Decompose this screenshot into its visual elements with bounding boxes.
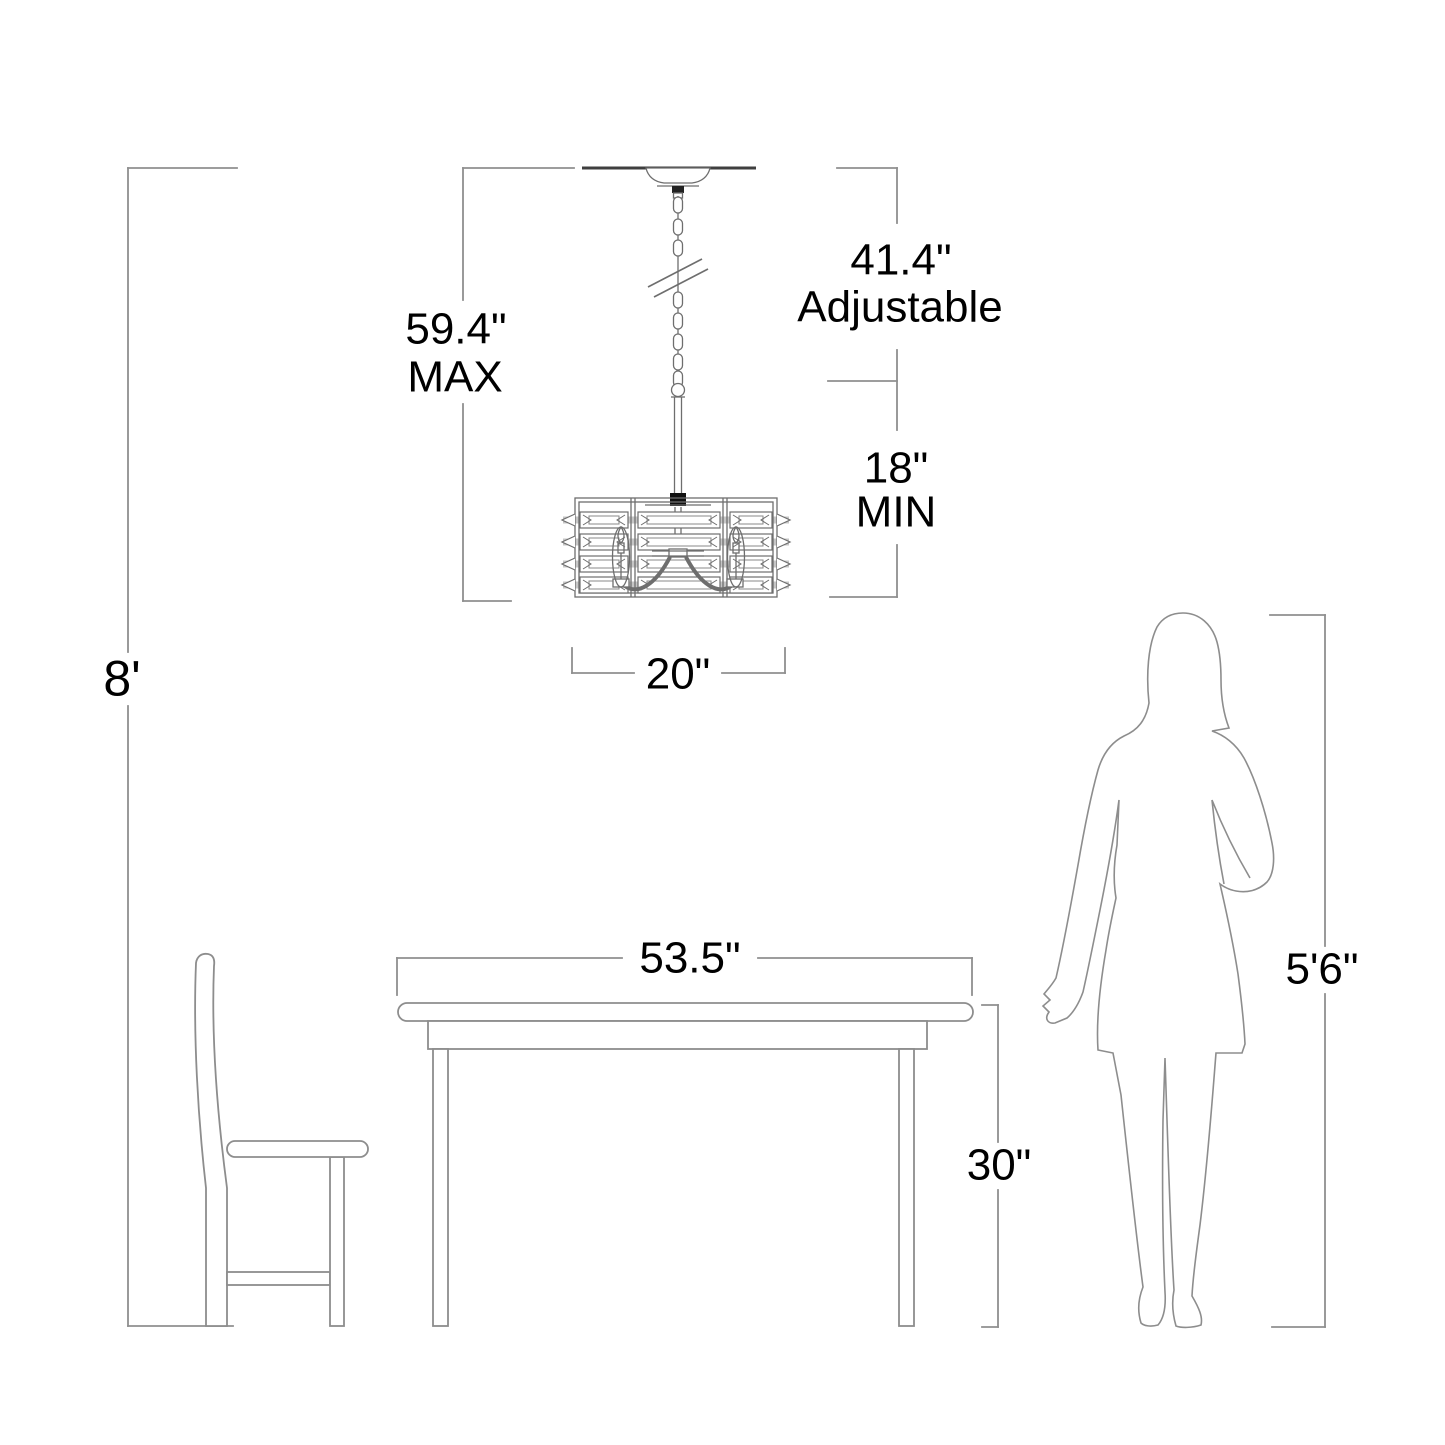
chair-stretcher	[227, 1272, 330, 1285]
line-art	[0, 0, 1445, 1445]
label-shade-width: 20"	[646, 652, 711, 699]
chandelier-canopy	[646, 168, 710, 198]
table-top	[398, 1003, 973, 1021]
label-table-width: 53.5"	[639, 936, 740, 983]
label-person-height: 5'6"	[1286, 947, 1359, 994]
chain-swivel	[672, 384, 685, 397]
label-max-qualifier: MAX	[407, 355, 502, 402]
chandelier-shade	[562, 498, 790, 597]
label-max-value: 59.4"	[405, 307, 506, 354]
label-adjustable-value: 41.4"	[850, 238, 951, 285]
chandelier-chain	[648, 196, 708, 397]
label-adjustable-qualifier: Adjustable	[797, 285, 1002, 332]
table-leg-right	[899, 1049, 914, 1326]
label-min-qualifier: MIN	[856, 490, 937, 537]
label-ceiling-height: 8'	[103, 653, 140, 706]
table-leg-left	[433, 1049, 448, 1326]
dimension-diagram: 8' 59.4" MAX 41.4" Adjustable 18" MIN 20…	[0, 0, 1445, 1445]
rod-coupler	[670, 493, 686, 506]
label-table-height: 30"	[967, 1143, 1032, 1190]
chair-seat	[227, 1141, 368, 1157]
dining-chair	[195, 954, 368, 1326]
dining-table	[398, 1003, 973, 1326]
chair-front-leg	[330, 1157, 344, 1326]
table-apron	[428, 1021, 927, 1049]
chandelier	[562, 168, 790, 597]
person-silhouette	[1043, 613, 1274, 1327]
label-min-value: 18"	[864, 446, 929, 493]
chain-links	[674, 197, 683, 387]
chair-back-post	[195, 954, 227, 1326]
